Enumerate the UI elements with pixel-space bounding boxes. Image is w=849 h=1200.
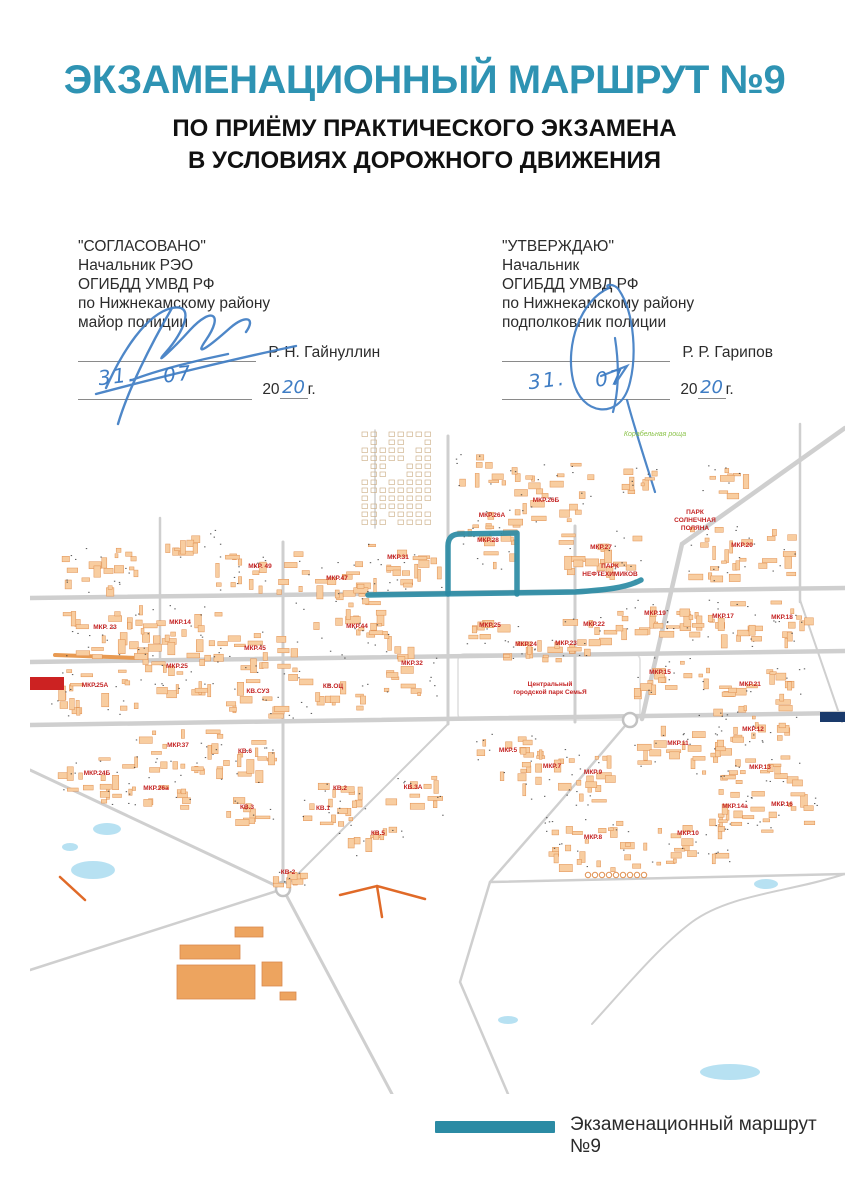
- building: [114, 566, 123, 574]
- building: [277, 636, 286, 642]
- building: [762, 830, 774, 833]
- building: [336, 618, 343, 625]
- map-text-speck: [655, 761, 656, 762]
- map-text-speck: [206, 746, 207, 747]
- park-label: СОЛНЕЧНАЯ: [674, 517, 716, 524]
- map-text-speck: [144, 648, 145, 649]
- garden-plot: [362, 512, 368, 517]
- approver-name-right: Р. Р. Гарипов: [682, 344, 773, 361]
- map-text-speck: [265, 580, 266, 581]
- building: [710, 476, 716, 479]
- building: [666, 626, 679, 629]
- building: [682, 839, 693, 846]
- signature-line-left: [78, 347, 256, 362]
- map-text-speck: [737, 712, 738, 713]
- blue-badge: [820, 712, 845, 722]
- building: [182, 798, 190, 804]
- approval-block-right: "УТВЕРЖДАЮ" Начальник ОГИБДД УМВД РФ по …: [502, 237, 849, 332]
- map-text-speck: [299, 561, 300, 562]
- building: [599, 638, 611, 645]
- building: [476, 455, 483, 460]
- building: [262, 662, 268, 668]
- building: [680, 661, 684, 664]
- building: [431, 558, 437, 564]
- building: [608, 828, 613, 831]
- factory-building: [235, 927, 263, 937]
- map-text-speck: [472, 528, 473, 529]
- building: [192, 767, 204, 771]
- building: [316, 693, 320, 702]
- building: [157, 621, 166, 626]
- building: [228, 636, 240, 642]
- building: [595, 627, 600, 634]
- garden-plot: [416, 464, 422, 469]
- building: [259, 586, 262, 594]
- garden-plot: [362, 448, 368, 453]
- garden-plot: [380, 472, 386, 477]
- building: [131, 557, 136, 562]
- building: [520, 748, 526, 754]
- building: [181, 789, 186, 794]
- map-text-speck: [204, 684, 205, 685]
- district-label: КВ.3: [240, 804, 254, 811]
- building: [63, 612, 71, 616]
- document-page: ЭКЗАМЕНАЦИОННЫЙ МАРШРУТ №9 ПО ПРИЁМУ ПРА…: [0, 0, 849, 1200]
- building: [769, 812, 777, 818]
- building: [67, 767, 73, 781]
- map-text-speck: [321, 638, 322, 639]
- map-text-speck: [775, 622, 776, 623]
- map-text-speck: [108, 709, 109, 710]
- map-text-speck: [501, 569, 502, 570]
- map-text-speck: [212, 683, 213, 684]
- building: [401, 684, 416, 688]
- building: [356, 562, 363, 567]
- district-label: МКР.7: [543, 763, 562, 770]
- building: [348, 838, 354, 848]
- building: [486, 462, 493, 468]
- building: [572, 831, 582, 834]
- map-text-speck: [626, 608, 627, 609]
- map-text-speck: [483, 740, 484, 741]
- map-text-speck: [791, 633, 792, 634]
- building: [536, 764, 542, 772]
- district-label: МКР.15: [649, 669, 671, 676]
- building: [729, 574, 740, 581]
- building: [413, 557, 427, 560]
- garden-plot: [416, 488, 422, 493]
- map-text-speck: [691, 545, 692, 546]
- building: [125, 681, 130, 685]
- building: [734, 811, 743, 818]
- map-text-speck: [239, 572, 240, 573]
- approval-left-title: "СОГЛАСОВАНО": [78, 237, 438, 256]
- building: [670, 752, 680, 759]
- map-text-speck: [728, 771, 729, 772]
- building: [792, 780, 802, 786]
- map-text-speck: [128, 783, 129, 784]
- building: [772, 529, 776, 535]
- map-text-speck: [484, 643, 485, 644]
- building: [151, 751, 161, 754]
- building: [76, 625, 89, 629]
- building: [206, 730, 220, 734]
- building: [740, 770, 745, 773]
- map-text-speck: [51, 703, 52, 704]
- map-text-speck: [238, 566, 239, 567]
- map-text-speck: [504, 772, 505, 773]
- building: [785, 638, 788, 648]
- map-text-speck: [815, 798, 816, 799]
- round-building: [634, 872, 639, 877]
- building: [273, 877, 279, 884]
- map-text-speck: [745, 744, 746, 745]
- building: [237, 755, 241, 767]
- garden-plot: [425, 472, 431, 477]
- map-text-speck: [567, 795, 568, 796]
- building: [560, 510, 570, 517]
- map-text-speck: [579, 655, 580, 656]
- building: [503, 655, 510, 658]
- map-text-speck: [236, 773, 237, 774]
- building: [432, 776, 437, 779]
- map-text-speck: [590, 496, 591, 497]
- building: [65, 580, 71, 589]
- map-text-speck: [112, 804, 113, 805]
- map-text-speck: [728, 483, 729, 484]
- building: [801, 794, 808, 807]
- building: [775, 773, 788, 778]
- building: [716, 747, 726, 751]
- map-text-speck: [270, 809, 271, 810]
- factory-building: [180, 945, 240, 959]
- road: [592, 874, 845, 1024]
- building: [101, 800, 107, 804]
- map-text-speck: [463, 544, 464, 545]
- building: [102, 693, 109, 707]
- garden-plot: [425, 480, 431, 485]
- map-text-speck: [456, 459, 457, 460]
- building: [387, 673, 399, 678]
- map-text-speck: [170, 605, 171, 606]
- building: [168, 642, 175, 654]
- signature-row-left: Р. Н. Гайнуллин: [78, 344, 380, 362]
- map-text-speck: [57, 700, 58, 701]
- district-label: МКР.10: [677, 830, 699, 837]
- building: [216, 563, 220, 577]
- map-text-speck: [515, 471, 516, 472]
- building: [475, 473, 479, 487]
- map-text-speck: [478, 759, 479, 760]
- map-text-speck: [262, 632, 263, 633]
- building: [787, 682, 791, 690]
- building: [71, 611, 76, 626]
- building: [690, 632, 700, 637]
- building: [715, 853, 729, 858]
- building: [99, 758, 111, 761]
- building: [618, 611, 624, 615]
- building: [128, 622, 132, 629]
- garden-plot: [407, 432, 413, 437]
- building: [731, 602, 746, 607]
- map-text-speck: [123, 700, 124, 701]
- map-text-speck: [214, 537, 215, 538]
- building: [641, 684, 652, 691]
- district-label: МКР.37: [167, 742, 189, 749]
- map-text-speck: [648, 474, 649, 475]
- map-text-speck: [214, 656, 215, 657]
- building: [697, 616, 703, 630]
- building: [568, 647, 582, 651]
- building: [657, 862, 661, 865]
- map-text-speck: [174, 608, 175, 609]
- building: [236, 819, 250, 825]
- garden-plot: [425, 464, 431, 469]
- map-text-speck: [258, 782, 259, 783]
- building: [781, 756, 790, 759]
- map-text-speck: [655, 743, 656, 744]
- map-text-speck: [434, 685, 435, 686]
- garden-plot: [380, 448, 386, 453]
- map-text-speck: [377, 624, 378, 625]
- building: [743, 474, 749, 488]
- map-text-speck: [397, 579, 398, 580]
- map-text-speck: [362, 598, 363, 599]
- building: [731, 792, 740, 797]
- map-text-speck: [747, 823, 748, 824]
- building: [224, 760, 230, 765]
- map-text-speck: [220, 590, 221, 591]
- map-text-speck: [306, 706, 307, 707]
- building: [578, 640, 587, 646]
- building: [731, 822, 742, 825]
- map-text-speck: [624, 538, 625, 539]
- map-text-speck: [153, 609, 154, 610]
- building: [109, 616, 122, 622]
- building: [67, 788, 78, 791]
- handwritten-day-left: 31.: [97, 362, 137, 390]
- building: [658, 828, 662, 833]
- map-text-speck: [392, 830, 393, 831]
- building: [240, 696, 252, 703]
- building: [585, 559, 598, 566]
- building: [231, 582, 236, 587]
- building: [126, 552, 132, 556]
- building: [82, 578, 90, 582]
- garden-plot: [407, 520, 413, 525]
- building: [424, 784, 431, 788]
- garden-plot: [416, 520, 422, 525]
- map-text-speck: [180, 775, 181, 776]
- building: [671, 853, 681, 859]
- map-text-speck: [526, 784, 527, 785]
- garden-plot: [416, 480, 422, 485]
- park-label: ПОЛЯНА: [681, 525, 709, 532]
- map-text-speck: [569, 789, 570, 790]
- map-text-speck: [749, 538, 750, 539]
- building: [277, 590, 282, 595]
- map-text-speck: [817, 805, 818, 806]
- map-text-speck: [634, 745, 635, 746]
- map-text-speck: [716, 825, 717, 826]
- map-text-speck: [138, 614, 139, 615]
- map-text-speck: [814, 803, 815, 804]
- building: [710, 819, 716, 826]
- map-text-speck: [703, 681, 704, 682]
- map-text-speck: [176, 797, 177, 798]
- building: [418, 569, 421, 581]
- building: [226, 702, 236, 706]
- map-text-speck: [299, 671, 300, 672]
- garden-plot: [398, 480, 404, 485]
- map-text-speck: [545, 823, 546, 824]
- building: [692, 623, 704, 627]
- map-text-speck: [414, 554, 415, 555]
- map-text-speck: [709, 600, 710, 601]
- map-text-speck: [137, 756, 138, 757]
- map-text-speck: [71, 773, 72, 774]
- map-text-speck: [100, 557, 101, 558]
- district-label: МКР.23: [555, 640, 577, 647]
- map-text-speck: [204, 606, 205, 607]
- district-label: МКР.28: [477, 537, 499, 544]
- map-text-speck: [754, 544, 755, 545]
- map-text-speck: [460, 454, 461, 455]
- map-text-speck: [220, 544, 221, 545]
- map-text-speck: [272, 753, 273, 754]
- map-text-speck: [780, 565, 781, 566]
- map-text-speck: [549, 779, 550, 780]
- building: [751, 807, 765, 811]
- building: [118, 640, 125, 654]
- building: [713, 546, 716, 559]
- building: [294, 552, 303, 557]
- building: [654, 623, 663, 628]
- road: [490, 874, 845, 882]
- building: [130, 642, 139, 649]
- handwritten-month-left: 07: [162, 360, 194, 387]
- year-prefix-left: 20: [262, 381, 279, 398]
- building: [410, 794, 420, 797]
- building: [554, 854, 558, 863]
- map-text-speck: [632, 481, 633, 482]
- building: [733, 737, 744, 742]
- round-building: [606, 872, 611, 877]
- map-text-speck: [584, 643, 585, 644]
- district-label: КВ.5: [371, 830, 385, 837]
- garden-plot: [389, 440, 395, 445]
- building: [680, 609, 690, 616]
- garden-plot: [416, 496, 422, 501]
- map-text-speck: [623, 850, 624, 851]
- map-text-speck: [482, 564, 483, 565]
- building: [752, 716, 755, 719]
- building: [357, 584, 364, 588]
- building: [492, 474, 503, 480]
- building: [148, 644, 161, 651]
- year-handwritten-left: 20: [280, 377, 308, 399]
- map-text-speck: [387, 691, 388, 692]
- building: [187, 653, 200, 658]
- map-text-speck: [477, 558, 478, 559]
- factory-building: [280, 992, 296, 1000]
- garden-plot: [416, 456, 422, 461]
- map-text-speck: [580, 768, 581, 769]
- map-text-speck: [202, 637, 203, 638]
- building: [145, 665, 152, 672]
- building: [526, 476, 533, 480]
- garden-plot: [425, 440, 431, 445]
- district-label: КВ.СУЗ: [246, 688, 269, 695]
- map-text-speck: [682, 848, 683, 849]
- building: [293, 668, 298, 672]
- map-text-speck: [219, 652, 220, 653]
- building: [215, 612, 222, 616]
- building: [212, 744, 218, 754]
- building: [300, 679, 314, 685]
- approver-name-left: Р. Н. Гайнуллин: [268, 344, 380, 361]
- district-label: МКР.19: [644, 610, 666, 617]
- building: [476, 462, 482, 467]
- map-text-speck: [339, 833, 340, 834]
- building: [152, 662, 166, 665]
- map-text-speck: [762, 740, 763, 741]
- map-text-speck: [727, 850, 728, 851]
- building: [752, 636, 762, 641]
- building: [278, 648, 289, 652]
- map-text-speck: [63, 789, 64, 790]
- map-text-speck: [196, 763, 197, 764]
- building: [780, 694, 784, 701]
- building: [788, 622, 795, 628]
- garden-plot: [389, 448, 395, 453]
- park-label: городской парк СемьЯ: [513, 688, 587, 696]
- building: [523, 740, 532, 745]
- building: [279, 579, 289, 584]
- building: [134, 703, 138, 709]
- building: [532, 516, 547, 521]
- building: [579, 794, 583, 801]
- map-text-speck: [587, 866, 588, 867]
- building: [597, 861, 601, 867]
- district-label: МКР.14а: [722, 803, 748, 810]
- map-text-speck: [621, 562, 622, 563]
- building: [650, 750, 661, 756]
- building: [706, 668, 709, 673]
- building: [144, 799, 152, 806]
- garden-plot: [398, 440, 404, 445]
- district-label: МКР.11: [667, 740, 689, 747]
- building: [719, 491, 728, 494]
- map-text-speck: [403, 837, 404, 838]
- map-text-speck: [161, 683, 162, 684]
- map-text-speck: [65, 691, 66, 692]
- map-text-speck: [296, 603, 297, 604]
- building: [460, 479, 466, 486]
- map-text-speck: [257, 672, 258, 673]
- building: [515, 474, 520, 482]
- pond: [93, 823, 121, 835]
- map-text-speck: [559, 844, 560, 845]
- building: [744, 706, 747, 711]
- building: [135, 757, 138, 767]
- forest-label: Корабельная роща: [624, 430, 686, 438]
- map-text-speck: [623, 492, 624, 493]
- map-text-speck: [725, 467, 726, 468]
- building: [104, 568, 113, 573]
- year-suffix-left: г.: [308, 381, 316, 398]
- district-label: МКР.16: [771, 801, 793, 808]
